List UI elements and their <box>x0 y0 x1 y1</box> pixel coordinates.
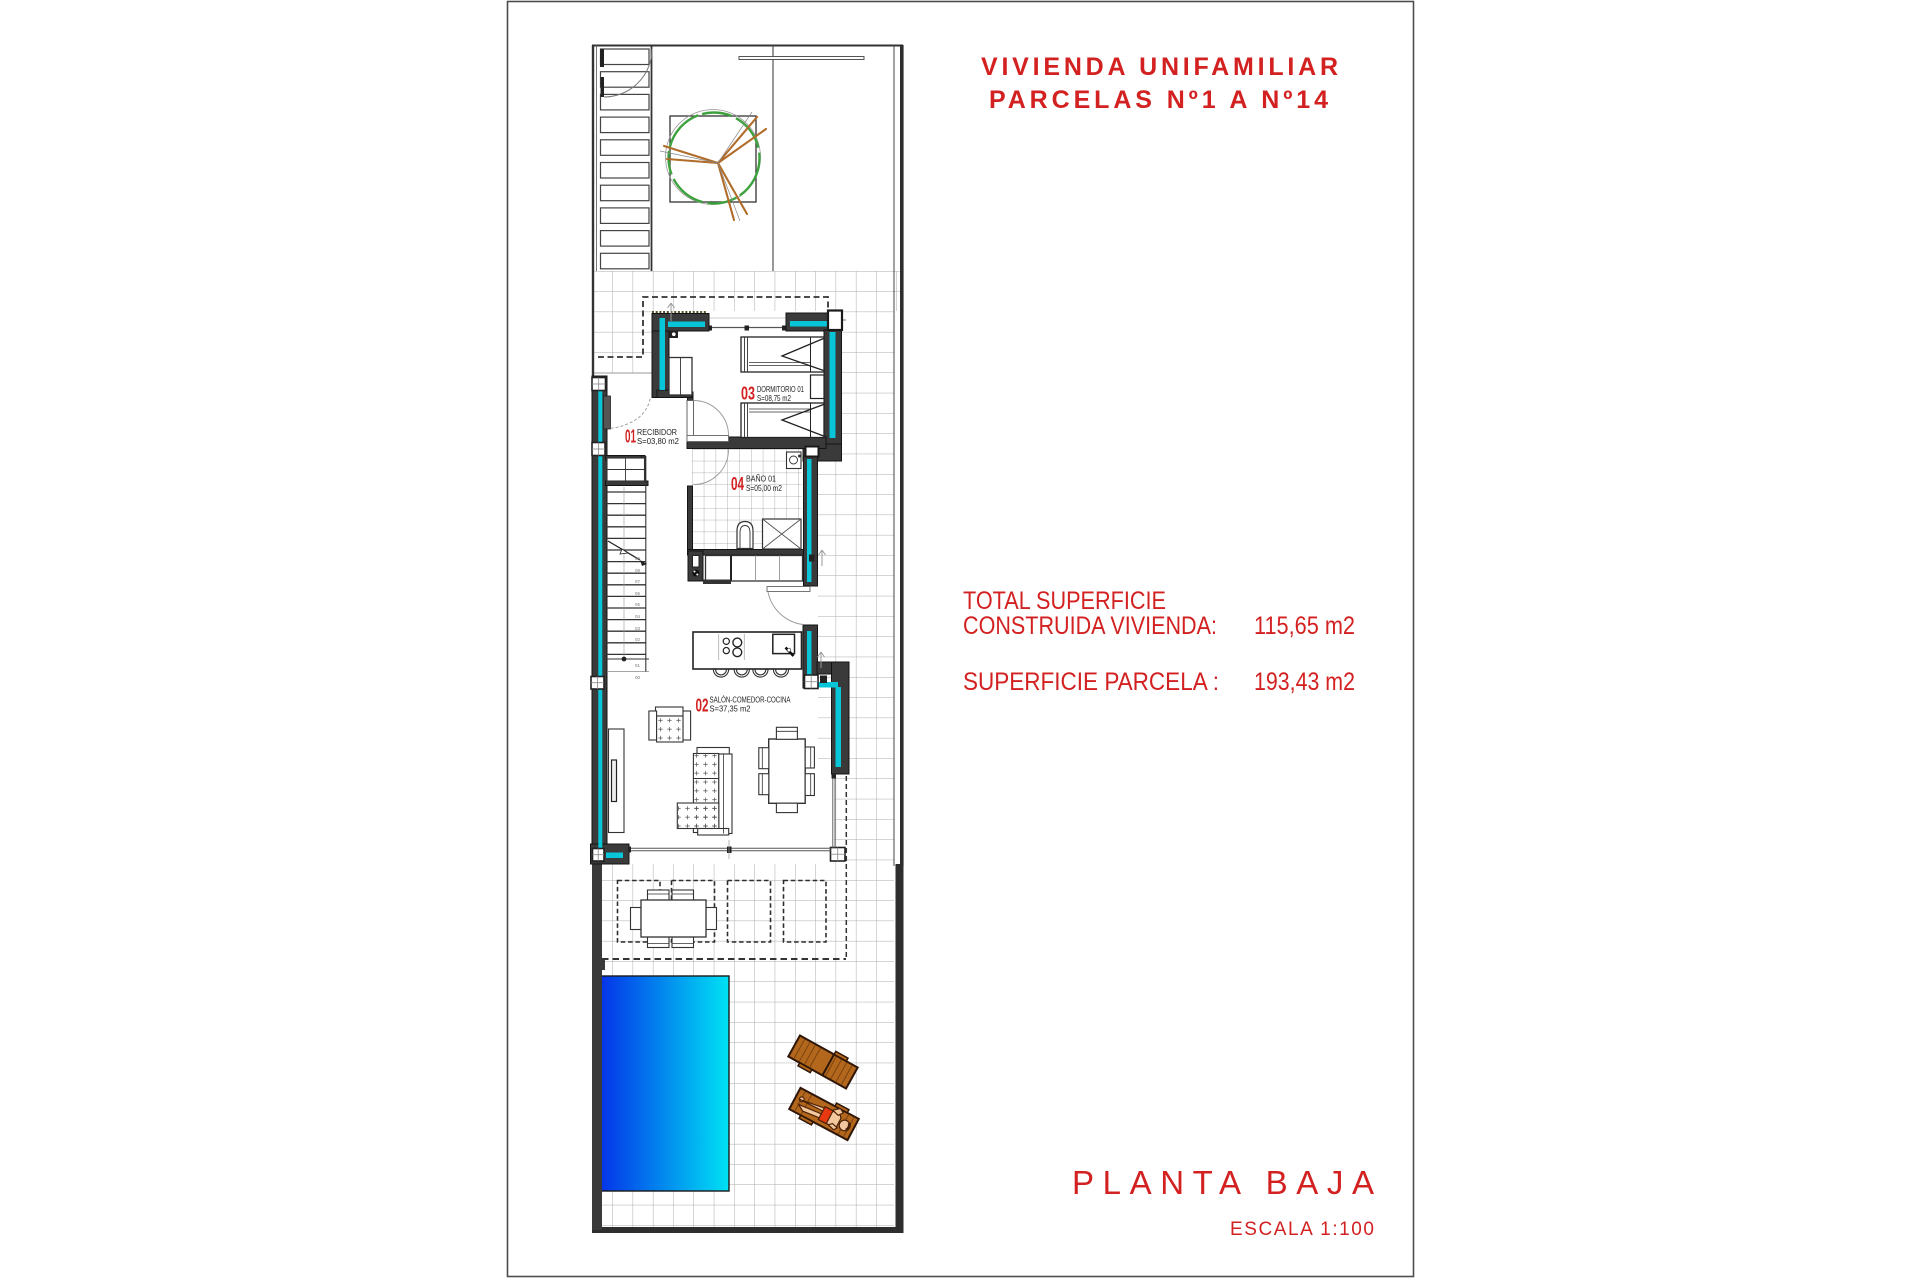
svg-text:S=37,35 m2: S=37,35 m2 <box>710 705 751 714</box>
svg-text:S=05,00 m2: S=05,00 m2 <box>746 484 782 493</box>
svg-text:S=03,80 m2: S=03,80 m2 <box>637 437 679 446</box>
svg-text:193,43 m2: 193,43 m2 <box>1254 668 1355 696</box>
svg-text:PLANTA BAJA: PLANTA BAJA <box>1072 1164 1374 1201</box>
svg-text:07: 07 <box>635 579 641 584</box>
svg-text:05: 05 <box>635 602 641 607</box>
svg-text:09: 09 <box>635 556 641 561</box>
svg-text:02: 02 <box>696 696 709 716</box>
svg-text:SUPERFICIE PARCELA :: SUPERFICIE PARCELA : <box>963 668 1219 696</box>
svg-text:01: 01 <box>635 663 641 668</box>
svg-text:DORMITORIO 01: DORMITORIO 01 <box>757 385 804 394</box>
svg-text:06: 06 <box>635 591 641 596</box>
svg-text:CONSTRUIDA VIVIENDA:: CONSTRUIDA VIVIENDA: <box>963 612 1217 640</box>
svg-text:RECIBIDOR: RECIBIDOR <box>637 428 677 437</box>
svg-text:01: 01 <box>625 427 636 447</box>
svg-text:TOTAL SUPERFICIE: TOTAL SUPERFICIE <box>963 587 1166 615</box>
svg-text:S=08,75 m2: S=08,75 m2 <box>757 394 791 403</box>
svg-text:BAÑO 01: BAÑO 01 <box>746 474 776 484</box>
svg-text:03: 03 <box>635 626 641 631</box>
svg-text:02: 02 <box>635 637 641 642</box>
svg-text:00: 00 <box>635 675 641 680</box>
svg-text:SALÓN-COMEDOR-COCINA: SALÓN-COMEDOR-COCINA <box>710 695 791 705</box>
svg-text:115,65 m2: 115,65 m2 <box>1254 612 1355 640</box>
svg-text:04: 04 <box>731 474 744 494</box>
svg-text:PARCELAS Nº1 A Nº14: PARCELAS Nº1 A Nº14 <box>989 86 1328 114</box>
svg-text:08: 08 <box>635 568 641 573</box>
svg-text:04: 04 <box>635 614 641 619</box>
svg-text:03: 03 <box>741 384 755 404</box>
svg-text:ESCALA 1:100: ESCALA 1:100 <box>1230 1219 1374 1240</box>
